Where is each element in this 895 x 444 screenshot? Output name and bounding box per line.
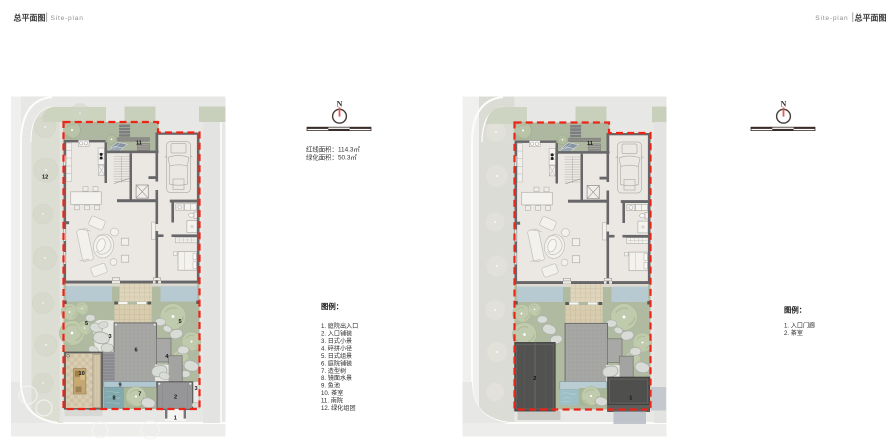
svg-text:12: 12 [42, 175, 48, 181]
svg-text:总平面图: 总平面图 [14, 12, 46, 22]
svg-text:10: 10 [79, 371, 85, 377]
svg-text:N: N [337, 100, 343, 109]
svg-text:1. 入口门廊: 1. 入口门廊 [784, 322, 815, 330]
svg-text:7: 7 [138, 392, 141, 398]
svg-text:9. 鱼池: 9. 鱼池 [321, 382, 340, 390]
svg-text:4. 碎拼小径: 4. 碎拼小径 [321, 344, 352, 352]
svg-text:2: 2 [533, 376, 536, 382]
svg-text:8. 镜面水景: 8. 镜面水景 [321, 374, 352, 382]
svg-text:图例：: 图例： [784, 306, 806, 315]
svg-text:12. 绿化组团: 12. 绿化组团 [321, 404, 356, 412]
svg-text:图例：: 图例： [321, 302, 343, 311]
svg-text:11: 11 [587, 141, 593, 147]
svg-text:Site-plan: Site-plan [815, 15, 848, 22]
svg-text:2. 入口铺装: 2. 入口铺装 [321, 330, 352, 338]
svg-text:8: 8 [113, 395, 116, 401]
svg-text:3: 3 [195, 386, 198, 392]
svg-text:6. 庭院铺装: 6. 庭院铺装 [321, 359, 352, 367]
svg-text:1. 庭院出入口: 1. 庭院出入口 [321, 322, 358, 330]
svg-text:11. 南院: 11. 南院 [321, 397, 343, 405]
svg-text:2. 茶室: 2. 茶室 [784, 329, 803, 337]
svg-text:9: 9 [119, 383, 122, 389]
svg-text:5: 5 [179, 319, 182, 325]
svg-text:1: 1 [174, 415, 177, 421]
svg-text:Site-plan: Site-plan [51, 15, 84, 22]
svg-text:11: 11 [136, 141, 142, 147]
svg-text:绿化面积：50.3㎡: 绿化面积：50.3㎡ [306, 153, 357, 162]
svg-text:N: N [781, 100, 787, 109]
svg-text:10. 茶室: 10. 茶室 [321, 389, 343, 397]
svg-text:5: 5 [85, 321, 88, 327]
svg-text:7. 造型树: 7. 造型树 [321, 367, 346, 375]
svg-text:5. 日式组景: 5. 日式组景 [321, 352, 352, 360]
svg-text:2: 2 [174, 394, 177, 400]
svg-text:3: 3 [109, 334, 112, 340]
svg-text:总平面图: 总平面图 [855, 12, 887, 22]
svg-text:6: 6 [135, 348, 138, 354]
svg-text:红线面积：114.3㎡: 红线面积：114.3㎡ [306, 144, 360, 153]
svg-text:1: 1 [629, 396, 632, 402]
svg-text:3. 日式小景: 3. 日式小景 [321, 337, 352, 345]
